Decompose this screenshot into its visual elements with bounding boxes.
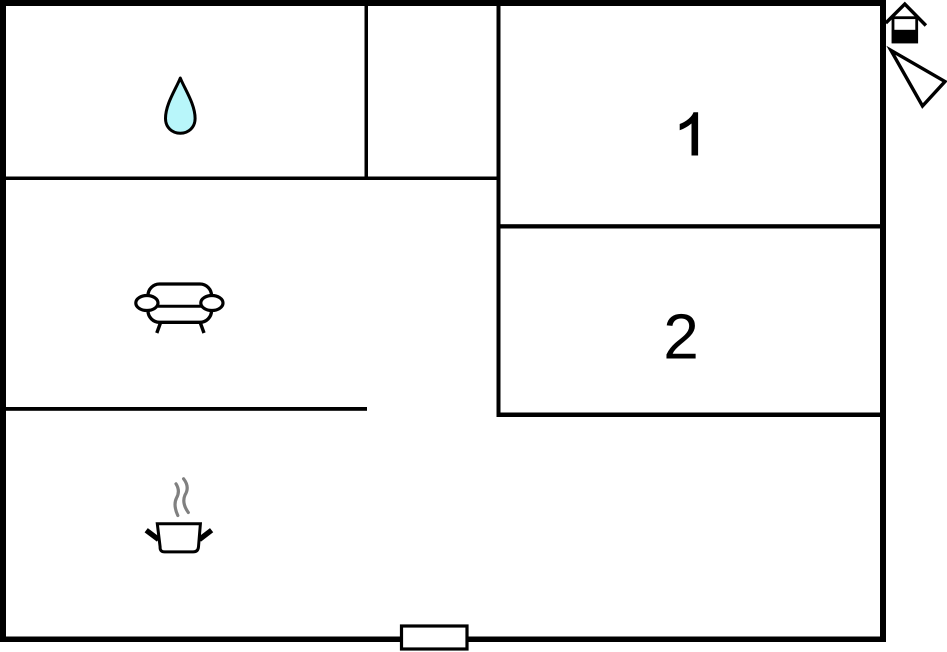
svg-text:2: 2	[663, 300, 699, 372]
